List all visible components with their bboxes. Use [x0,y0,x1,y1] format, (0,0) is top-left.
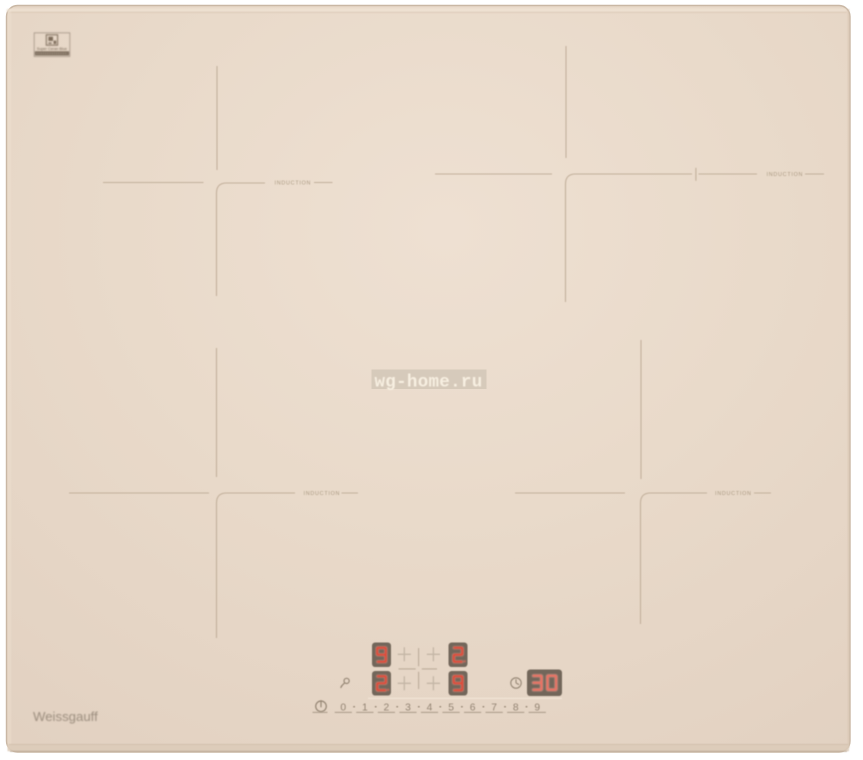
svg-text:3: 3 [405,702,411,713]
svg-text:wg-home.ru: wg-home.ru [374,372,482,392]
svg-text:INDUCTION: INDUCTION [275,181,312,187]
svg-text:INDUCTION: INDUCTION [767,172,804,178]
svg-text:7: 7 [491,702,497,713]
svg-text:Weissgauff: Weissgauff [33,709,98,724]
svg-text:9: 9 [534,702,540,713]
svg-text:4: 4 [427,702,433,713]
svg-text:1: 1 [362,702,368,713]
svg-text:2: 2 [384,702,390,713]
svg-text:Super Ceran Blue: Super Ceran Blue [37,47,67,51]
svg-text:8: 8 [513,702,519,713]
svg-text:0: 0 [340,702,346,713]
svg-text:5: 5 [448,702,454,713]
svg-text:INDUCTION: INDUCTION [304,491,341,497]
svg-text:INDUCTION: INDUCTION [715,491,752,497]
svg-text:6: 6 [470,702,476,713]
